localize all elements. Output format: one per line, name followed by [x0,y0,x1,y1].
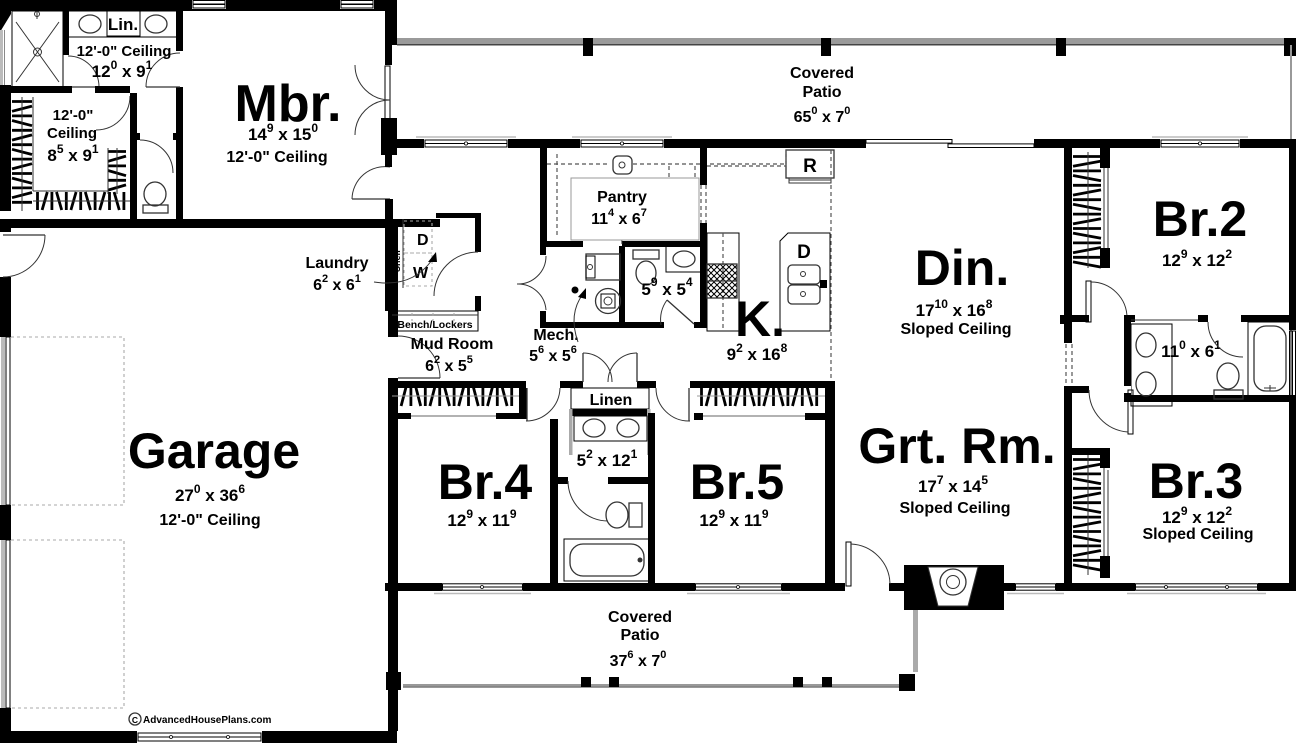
svg-text:Din.: Din. [915,240,1009,296]
svg-text:149 x 150: 149 x 150 [248,121,318,144]
svg-text:Patio: Patio [802,84,841,101]
svg-text:Lin.: Lin. [108,15,138,34]
svg-text:52 x 121: 52 x 121 [577,447,638,470]
svg-text:Garage: Garage [128,423,300,479]
svg-text:Mud Room: Mud Room [411,336,494,353]
svg-text:12'-0" Ceiling: 12'-0" Ceiling [159,512,260,529]
svg-text:D: D [797,242,811,263]
svg-text:129 x 122: 129 x 122 [1162,247,1232,270]
svg-text:Bench/Lockers: Bench/Lockers [397,319,472,331]
svg-text:Mech.: Mech. [533,327,578,344]
svg-text:92 x 168: 92 x 168 [727,341,788,364]
svg-text:270 x 366: 270 x 366 [175,482,245,505]
svg-text:C: C [132,715,138,725]
svg-text:650 x 70: 650 x 70 [794,105,851,126]
svg-text:62 x 61: 62 x 61 [313,273,361,294]
svg-text:Sloped Ceiling: Sloped Ceiling [1142,526,1253,543]
svg-text:85 x 91: 85 x 91 [47,142,99,165]
svg-text:AdvancedHousePlans.com: AdvancedHousePlans.com [143,715,271,726]
svg-text:114 x 67: 114 x 67 [591,207,647,228]
svg-text:129 x 122: 129 x 122 [1162,504,1232,527]
svg-text:12'-0" Ceiling: 12'-0" Ceiling [77,43,172,60]
svg-text:Br.5: Br.5 [690,454,785,510]
svg-text:Linen: Linen [590,392,633,409]
svg-text:D: D [417,232,429,249]
svg-text:K.: K. [735,291,785,347]
svg-text:110 x 61: 110 x 61 [1161,338,1221,361]
svg-text:376 x 70: 376 x 70 [610,649,667,670]
svg-text:Grt. Rm.: Grt. Rm. [858,418,1055,474]
svg-text:1710 x 168: 1710 x 168 [916,297,993,320]
svg-text:12'-0" Ceiling: 12'-0" Ceiling [226,149,327,166]
svg-text:Ceiling: Ceiling [47,125,97,142]
svg-text:Shelf: Shelf [392,249,402,272]
svg-text:Covered: Covered [790,65,854,82]
svg-text:12'-0": 12'-0" [53,107,94,124]
svg-text:56 x 56: 56 x 56 [529,344,577,365]
svg-text:62 x 55: 62 x 55 [425,354,473,375]
svg-text:Patio: Patio [620,627,659,644]
svg-text:129 x 119: 129 x 119 [699,507,768,530]
svg-text:120 x 91: 120 x 91 [92,58,153,81]
svg-text:Br.4: Br.4 [438,454,533,510]
svg-text:129 x 119: 129 x 119 [447,507,516,530]
svg-text:Pantry: Pantry [597,189,647,206]
svg-text:177 x 145: 177 x 145 [918,473,988,496]
svg-text:Laundry: Laundry [305,255,368,272]
svg-text:Sloped Ceiling: Sloped Ceiling [900,321,1011,338]
svg-text:Br.3: Br.3 [1149,453,1244,509]
svg-text:W: W [413,265,429,282]
svg-text:R: R [803,156,817,177]
svg-text:Covered: Covered [608,609,672,626]
svg-text:Sloped Ceiling: Sloped Ceiling [899,500,1010,517]
svg-text:Br.2: Br.2 [1153,191,1248,247]
